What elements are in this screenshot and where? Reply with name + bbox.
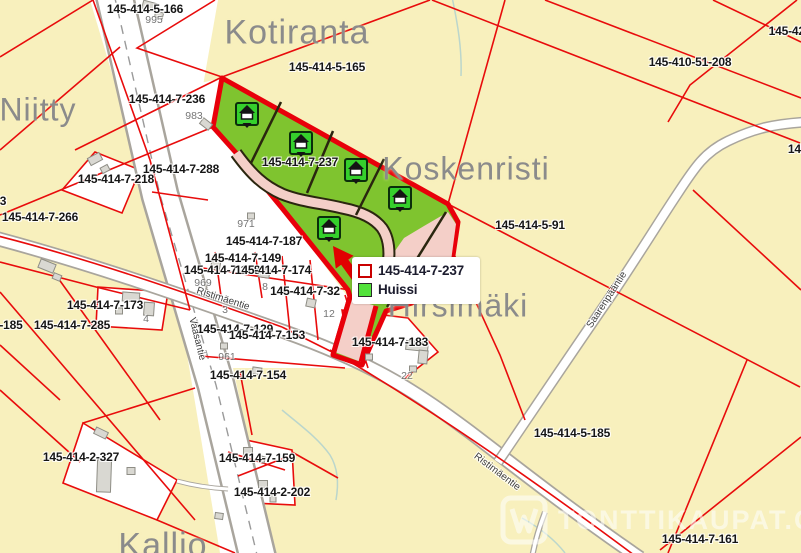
parcel-id-label: 145-414-7-285 [34, 318, 110, 332]
legend-parcel-id: 145-414-7-237 [378, 263, 464, 278]
address-number-label: 995 [145, 14, 163, 26]
parcel-id-label: 145-414-7-187 [226, 234, 302, 248]
legend-estate-name: Huissi [378, 282, 417, 297]
parcel-id-label: -185 [0, 318, 23, 332]
parcel-id-label: 145-414-7-173 [67, 298, 143, 312]
parcel-id-label: 145-414-7-159 [219, 451, 295, 465]
parcel-id-label: 145-414-7-218 [78, 172, 154, 186]
house-plot-marker[interactable] [316, 215, 342, 245]
address-number-label: 971 [237, 218, 255, 230]
parcel-id-label: 145-41 [788, 142, 801, 156]
address-number-label: 22 [401, 370, 413, 382]
parcel-id-label: 145-414-7-153 [229, 328, 305, 342]
parcel-id-label: 145-414-5-185 [534, 426, 610, 440]
map-canvas[interactable]: KotirantaNiittyKoskenristiHirsimäkiKalli… [0, 0, 801, 553]
house-plot-icon [234, 101, 260, 131]
place-name-label: Niitty [0, 92, 77, 129]
parcel-id-label: 145-414-7-266 [2, 210, 78, 224]
address-number-label: 8 [262, 281, 268, 293]
house-plot-icon [387, 185, 413, 215]
address-number-label: 983 [185, 110, 203, 122]
place-name-label: Koskenristi [382, 151, 550, 188]
legend: 145-414-7-237 Huissi [352, 257, 480, 304]
green-fill-swatch-icon [358, 283, 372, 297]
parcel-id-label: 145-421 [769, 24, 801, 38]
parcel-id-label: 145-414-7-174 [235, 263, 311, 277]
parcel-id-label: 145-414-7-32 [270, 284, 340, 298]
place-name-label: Kotiranta [224, 14, 369, 53]
parcel-id-label: 145-414-7-183 [352, 335, 428, 349]
parcel-id-label: 145-414-7-161 [662, 532, 738, 546]
house-plot-icon [288, 130, 314, 160]
parcel-id-label: 145-414-5-165 [289, 60, 365, 74]
parcel-id-label: 145-414-2-327 [43, 450, 119, 464]
parcel-id-label: 145-410-51-208 [649, 55, 732, 69]
red-outline-swatch-icon [358, 264, 372, 278]
parcel-id-label: 145-414-5-91 [495, 218, 565, 232]
address-number-label: 961 [218, 351, 236, 363]
house-plot-marker[interactable] [288, 130, 314, 160]
address-number-label: 12 [323, 308, 335, 320]
house-plot-icon [316, 215, 342, 245]
house-plot-marker[interactable] [387, 185, 413, 215]
address-number-label: 4 [143, 313, 149, 325]
parcel-id-label: 145-414-7-154 [210, 368, 286, 382]
parcel-id-label: 145-414-7-236 [129, 92, 205, 106]
parcel-id-label: 3 [0, 194, 6, 208]
place-name-label: Kallio [118, 527, 207, 553]
house-plot-icon [343, 157, 369, 187]
legend-row-name: Huissi [358, 280, 474, 299]
legend-row-parcel: 145-414-7-237 [358, 261, 474, 280]
parcel-id-label: 145-414-7-288 [143, 162, 219, 176]
house-plot-marker[interactable] [234, 101, 260, 131]
parcel-id-label: 145-414-2-202 [234, 485, 310, 499]
house-plot-marker[interactable] [343, 157, 369, 187]
